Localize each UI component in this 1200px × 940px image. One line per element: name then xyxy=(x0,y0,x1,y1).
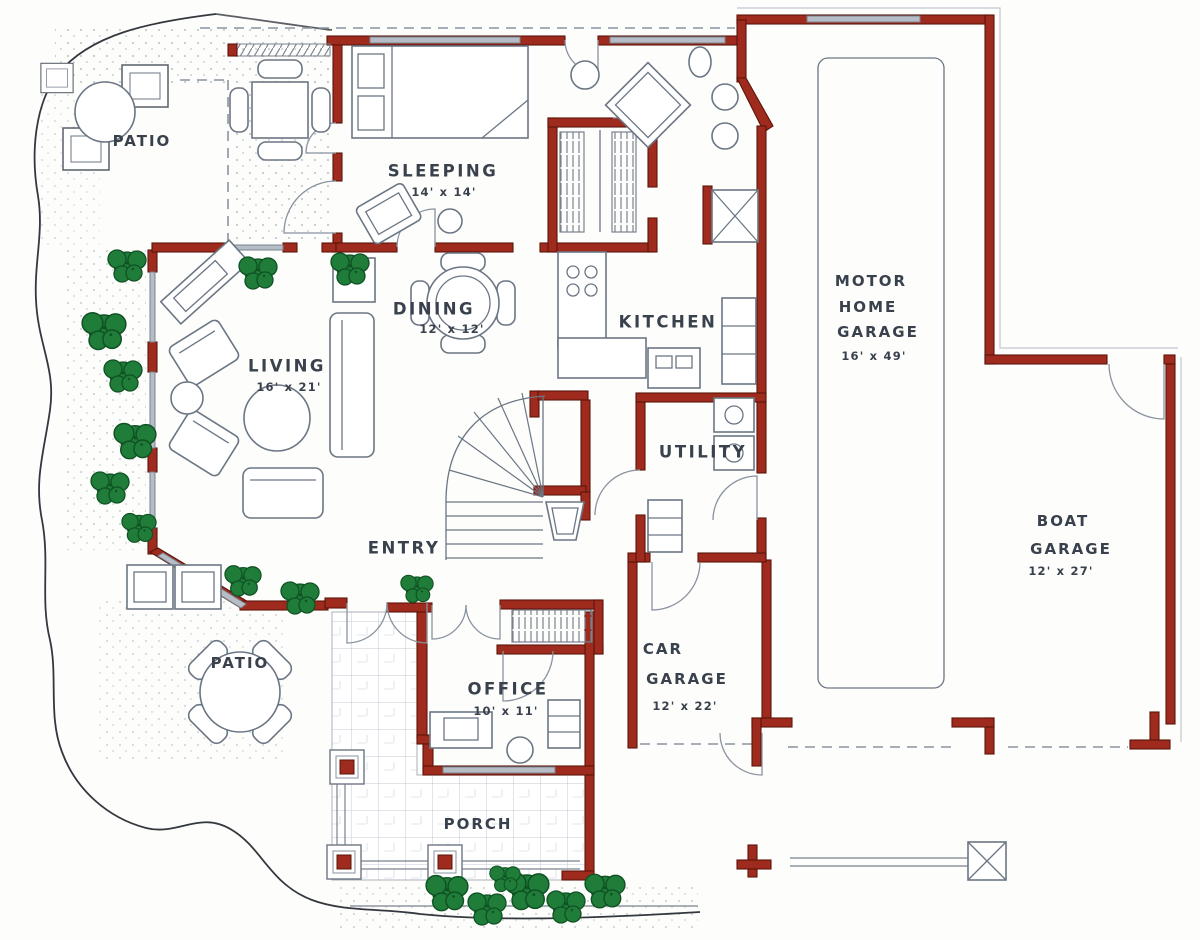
label-living: LIVING xyxy=(248,357,326,376)
label-boat-garage-2: GARAGE xyxy=(1030,540,1112,558)
utility-appliances xyxy=(648,398,754,552)
roof-eave-lines xyxy=(737,8,1181,742)
label-sleeping: SLEEPING xyxy=(388,162,499,181)
label-office-dims: 10' x 11' xyxy=(473,704,538,718)
label-dining: DINING xyxy=(393,300,475,319)
label-utility: UTILITY xyxy=(659,443,747,462)
label-car-garage-1: CAR xyxy=(643,640,683,658)
label-motor-home-garage-2: HOME xyxy=(839,298,897,316)
staircase xyxy=(446,393,584,560)
apron-beams xyxy=(790,842,1006,880)
floor-plan: PATIO SLEEPING 14' x 14' DINING 12' x 12… xyxy=(0,0,1200,940)
label-entry: ENTRY xyxy=(368,539,441,558)
floor-plan-drawing xyxy=(0,0,1200,940)
label-boat-garage-dims: 12' x 27' xyxy=(1028,564,1093,578)
label-car-garage-2: GARAGE xyxy=(646,670,728,688)
label-car-garage-dims: 12' x 22' xyxy=(652,699,717,713)
label-patio-lower: PATIO xyxy=(211,654,270,672)
label-porch: PORCH xyxy=(444,815,513,833)
label-motor-home-garage-dims: 16' x 49' xyxy=(841,349,906,363)
label-motor-home-garage-1: MOTOR xyxy=(835,272,907,290)
label-kitchen: KITCHEN xyxy=(619,313,718,332)
motor-home-bay xyxy=(818,58,944,688)
sleeping-furniture xyxy=(352,46,528,245)
label-living-dims: 16' x 21' xyxy=(256,380,321,394)
label-motor-home-garage-3: GARAGE xyxy=(837,323,919,341)
label-dining-dims: 12' x 12' xyxy=(419,322,484,336)
label-patio-upper: PATIO xyxy=(113,132,172,150)
label-boat-garage-1: BOAT xyxy=(1037,512,1089,530)
label-sleeping-dims: 14' x 14' xyxy=(411,185,476,199)
label-office: OFFICE xyxy=(467,680,548,699)
